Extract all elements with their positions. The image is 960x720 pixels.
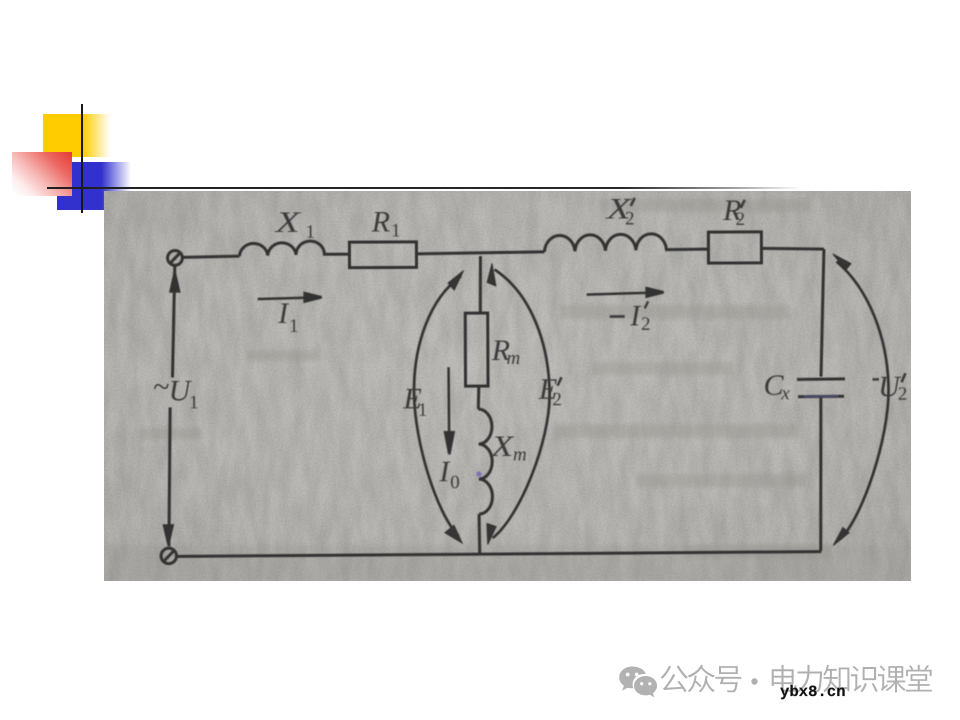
svg-text:2: 2 [641, 314, 651, 335]
svg-text:0: 0 [450, 472, 460, 493]
svg-text:X: X [274, 206, 302, 239]
svg-text:2: 2 [736, 209, 746, 230]
svg-text:1: 1 [418, 400, 428, 421]
svg-text:X: X [490, 430, 515, 463]
svg-text:m: m [513, 444, 527, 465]
svg-text:x: x [780, 383, 790, 404]
svg-text:m: m [506, 348, 520, 369]
svg-text:2: 2 [898, 384, 908, 405]
svg-text:1: 1 [289, 316, 299, 337]
svg-text:1: 1 [306, 222, 316, 243]
svg-text:2: 2 [625, 208, 635, 229]
svg-text:1: 1 [189, 392, 199, 413]
svg-text:2: 2 [552, 389, 562, 410]
svg-text:1: 1 [391, 220, 401, 241]
svg-text:~: ~ [153, 370, 169, 403]
svg-text:R: R [371, 205, 390, 238]
